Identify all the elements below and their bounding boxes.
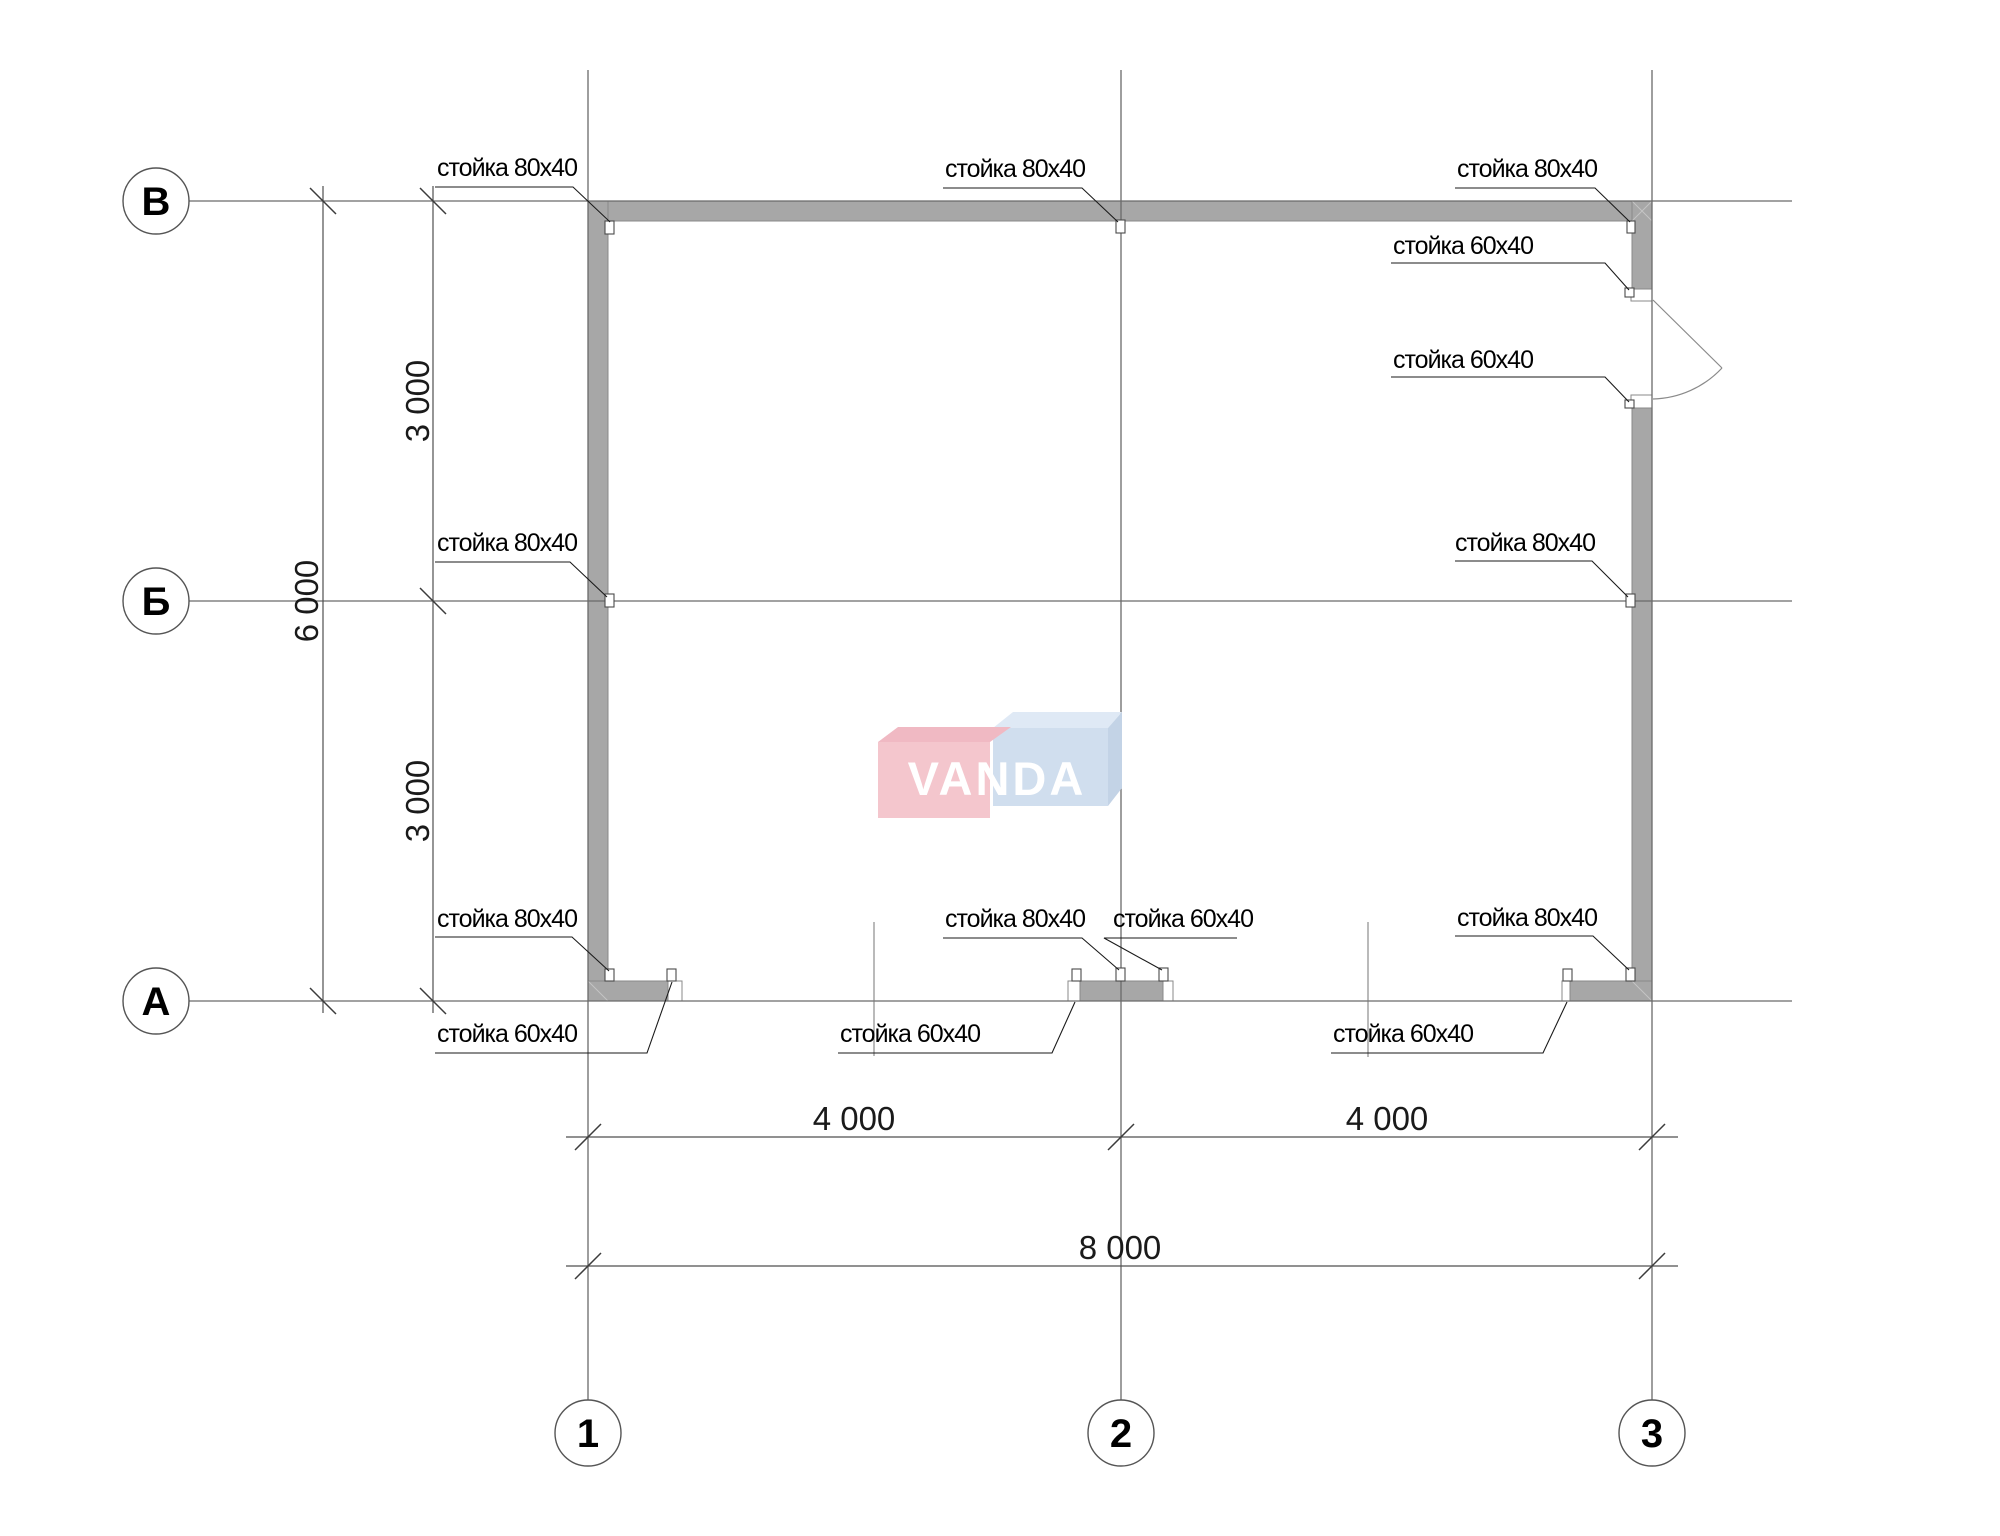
wall-top xyxy=(588,201,1652,221)
axis-label-1: 1 xyxy=(577,1412,599,1456)
label-post80-top-right: стойка 80х40 xyxy=(1457,155,1597,183)
logo-pink-top-face xyxy=(878,727,1011,742)
axis-bubble-row-a: А xyxy=(123,968,189,1034)
stud-top-right xyxy=(1627,221,1635,233)
leader-post80-bottom-right xyxy=(1455,936,1629,970)
label-post80-top-left: стойка 80х40 xyxy=(437,154,577,182)
stud-door-jamb-top xyxy=(1625,288,1634,297)
stud-bottom-mid-center xyxy=(1116,968,1125,981)
label-post60-bottom-right: стойка 60х40 xyxy=(1333,1020,1473,1048)
stud-bottom-left-corner xyxy=(605,969,614,981)
vanda-logo: VANDA xyxy=(878,712,1122,818)
axis-label-v: В xyxy=(142,180,171,224)
stud-bottom-right-corner xyxy=(1626,968,1635,981)
cap-stub-mid-left xyxy=(1068,981,1080,1001)
cap-stub-left-end xyxy=(668,981,682,1001)
label-post80-top-center: стойка 80х40 xyxy=(945,155,1085,183)
axis-label-a: А xyxy=(142,980,171,1024)
label-post80-bottom-center: стойка 80х40 xyxy=(945,905,1085,933)
leader-post80-mid-left xyxy=(435,562,607,597)
leader-post80-mid-right xyxy=(1455,561,1628,597)
label-post80-bottom-right: стойка 80х40 xyxy=(1457,904,1597,932)
stud-top-left xyxy=(605,221,614,234)
door-swing-arc xyxy=(1653,368,1722,399)
axis-label-b: Б xyxy=(142,580,171,624)
label-post60-door-top: стойка 60х40 xyxy=(1393,232,1533,260)
axis-bubble-row-v: В xyxy=(123,168,189,234)
leader-post80-bottom-center xyxy=(943,938,1119,970)
wall-right-above-door xyxy=(1632,201,1652,295)
leader-post80-top-left xyxy=(435,187,610,222)
axis-bubble-col-2: 2 xyxy=(1088,1400,1154,1466)
axis-label-2: 2 xyxy=(1110,1412,1132,1456)
cap-stub-right-end xyxy=(1562,981,1570,1001)
logo-text: VANDA xyxy=(908,752,1087,805)
label-post60-door-bottom: стойка 60х40 xyxy=(1393,346,1533,374)
dim-text-8000: 8 000 xyxy=(1079,1229,1162,1266)
leader-post80-bottom-left xyxy=(435,937,609,971)
stud-door-jamb-bottom xyxy=(1625,400,1634,408)
wall-left xyxy=(588,201,608,981)
wall-end-caps xyxy=(668,289,1652,1001)
door xyxy=(1653,300,1722,399)
label-post80-mid-left: стойка 80х40 xyxy=(437,529,577,557)
dimension-texts: 3 000 3 000 6 000 4 000 4 000 8 000 xyxy=(288,360,1428,1266)
dim-text-4000-left: 4 000 xyxy=(813,1100,896,1137)
axis-bubble-col-3: 3 xyxy=(1619,1400,1685,1466)
wall-right-below-door xyxy=(1632,400,1652,981)
floor-plan-drawing: VANDA 3 000 3 000 6 000 4 000 4 000 8 00… xyxy=(0,0,2000,1536)
dim-text-6000: 6 000 xyxy=(288,560,325,643)
label-post80-mid-right: стойка 80х40 xyxy=(1455,529,1595,557)
logo-blue-top-face xyxy=(993,712,1122,728)
stud-bottom-left-end xyxy=(667,969,676,981)
dim-text-4000-right: 4 000 xyxy=(1346,1100,1429,1137)
label-post60-bottom-center: стойка 60х40 xyxy=(1113,905,1253,933)
logo-blue-side-face xyxy=(1108,712,1122,806)
leader-post60-door-bottom xyxy=(1391,377,1629,402)
dim-text-3000-top: 3 000 xyxy=(399,360,436,443)
stud-bottom-mid-right xyxy=(1159,968,1168,981)
stud-bottom-mid-left xyxy=(1072,969,1081,981)
leader-post60-bottom-center xyxy=(1104,938,1237,970)
wall-stub-bottom-right xyxy=(1570,981,1652,1001)
axis-label-3: 3 xyxy=(1641,1412,1663,1456)
cap-stub-mid-right xyxy=(1163,981,1173,1001)
label-post80-bottom-left: стойка 80х40 xyxy=(437,905,577,933)
axis-bubble-row-b: Б xyxy=(123,568,189,634)
door-leaf xyxy=(1653,300,1722,368)
stud-bottom-right-end xyxy=(1563,969,1572,981)
dim-text-3000-bottom: 3 000 xyxy=(399,760,436,843)
axis-bubble-col-1: 1 xyxy=(555,1400,621,1466)
label-post60-bottom-left: стойка 60х40 xyxy=(437,1020,577,1048)
leader-post60-door-top xyxy=(1391,263,1629,290)
wall-stub-bottom-left xyxy=(588,981,668,1001)
label-post60-bottom-midleft: стойка 60х40 xyxy=(840,1020,980,1048)
